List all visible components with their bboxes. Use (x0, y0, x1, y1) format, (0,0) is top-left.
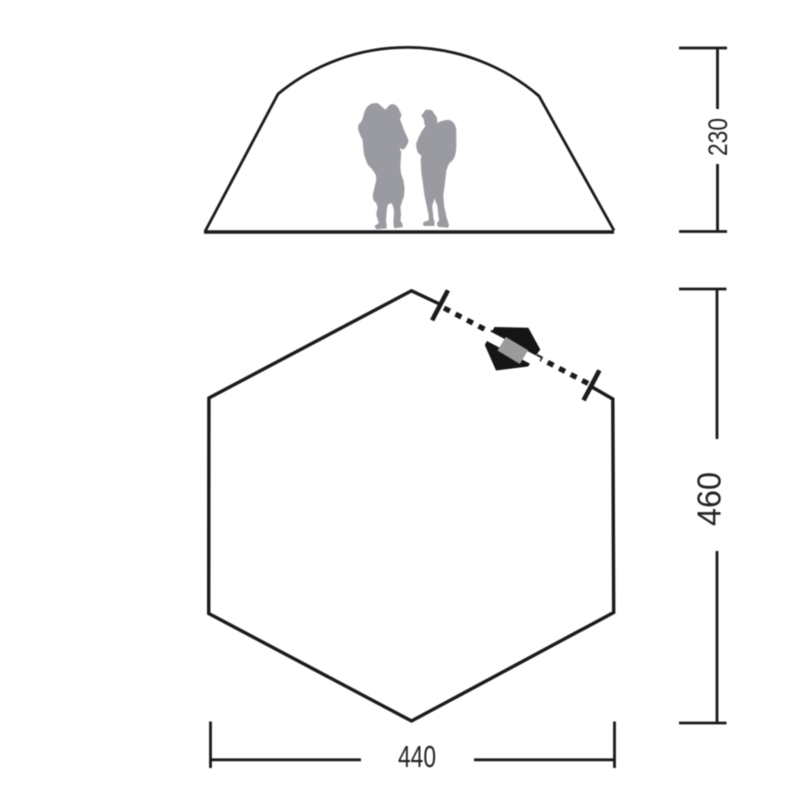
svg-text:460: 460 (691, 472, 728, 526)
svg-text:440: 440 (398, 739, 436, 774)
svg-text:230: 230 (703, 118, 733, 156)
